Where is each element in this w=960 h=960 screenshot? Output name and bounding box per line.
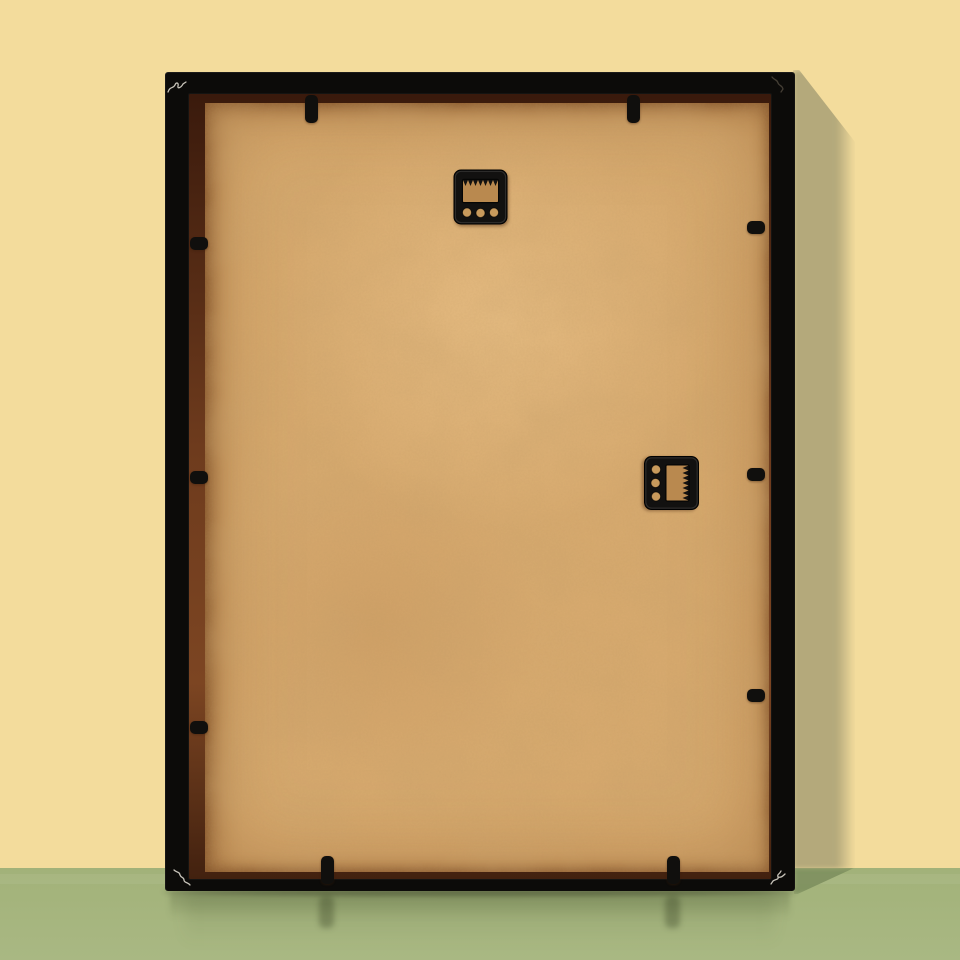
frame-wall-shadow: [793, 70, 855, 869]
retainer-tab-right: [747, 468, 765, 481]
sawtooth-hanger-top: [453, 169, 508, 225]
corner-scratch-top-left: [166, 76, 192, 98]
corner-scratch-bottom-right: [767, 868, 793, 890]
tab-reflection: [665, 896, 680, 928]
corner-scratch-bottom-left: [171, 866, 197, 890]
retainer-tab-bottom: [321, 856, 334, 884]
corner-scratch-top-right: [768, 73, 792, 97]
frame-contact-reflection: [170, 893, 790, 919]
retainer-tab-bottom: [667, 856, 680, 884]
retainer-tab-right: [747, 689, 765, 702]
photo-scene: [0, 0, 960, 960]
retainer-tab-left: [190, 721, 208, 734]
tab-reflection: [319, 896, 334, 928]
retainer-tab-left: [190, 471, 208, 484]
sawtooth-hanger-side: [644, 456, 700, 511]
retainer-tab-right: [747, 221, 765, 234]
retainer-tab-left: [190, 237, 208, 250]
retainer-tab-top: [627, 95, 640, 123]
retainer-tab-top: [305, 95, 318, 123]
